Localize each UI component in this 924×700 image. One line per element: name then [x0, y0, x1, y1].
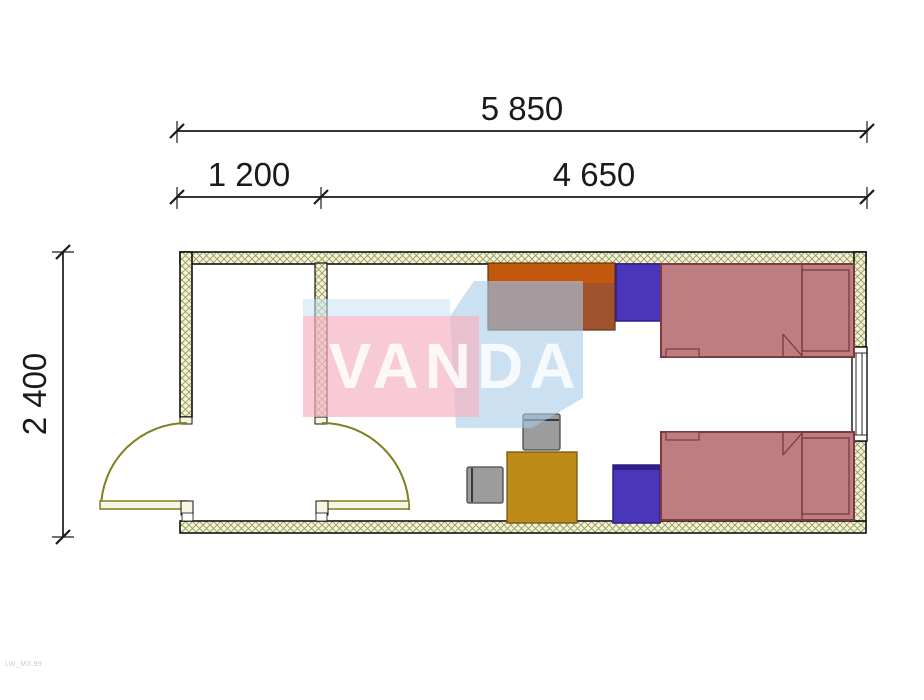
- wall-top: [180, 252, 866, 264]
- bed-top: [661, 264, 854, 357]
- window: [852, 347, 867, 441]
- door-leaf-entrance: [100, 501, 187, 509]
- watermark: VANDA: [303, 281, 583, 428]
- dim-label-total-width: 5 850: [481, 90, 564, 127]
- corner-code: LW_M3.99: [5, 661, 42, 668]
- dim-label-depth: 2 400: [16, 353, 53, 436]
- wall-right-upper: [854, 252, 866, 347]
- door-leaf-interior: [322, 501, 409, 509]
- door-swing-entrance: [101, 423, 187, 509]
- watermark-logo-text: VANDA: [329, 330, 582, 402]
- doors: [100, 423, 409, 521]
- bed-bottom: [661, 432, 854, 520]
- watermark-band: [303, 299, 450, 316]
- door-swing-interior: [322, 423, 409, 510]
- chair-left: [467, 467, 503, 503]
- dim-label-room-width: 4 650: [553, 156, 636, 193]
- table: [507, 452, 577, 523]
- wall-right-lower: [854, 441, 866, 521]
- wall-left: [180, 252, 192, 417]
- door-threshold-notch: [316, 513, 327, 521]
- bedside-cabinet-bottom: [613, 465, 660, 523]
- dim-label-entry-width: 1 200: [208, 156, 291, 193]
- bedside-cabinet-top: [616, 264, 661, 321]
- floor-plan-canvas: 5 850 1 200 4 650 2 400: [0, 0, 924, 700]
- floor-plan-drawing: 5 850 1 200 4 650 2 400: [0, 0, 924, 700]
- door-threshold-notch: [182, 513, 193, 521]
